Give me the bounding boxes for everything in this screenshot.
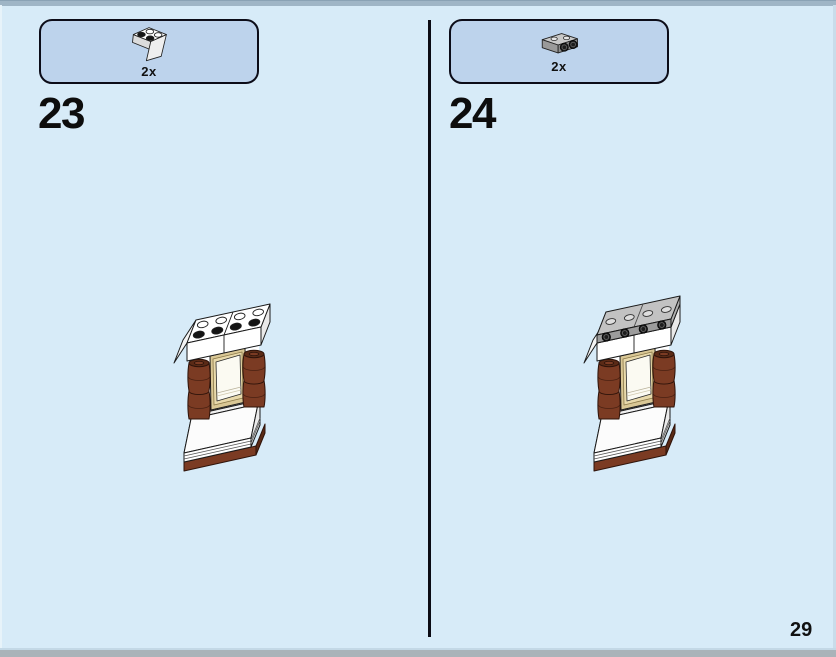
quantity-label: 2x — [551, 59, 566, 74]
page-left-edge — [0, 5, 2, 648]
step-number-24: 24 — [449, 92, 495, 136]
page-number: 29 — [790, 620, 820, 640]
parts-callout-box-step-24: 2x — [449, 19, 669, 84]
silver-1x2-plate-side-studs-icon — [535, 30, 583, 60]
quantity-label: 2x — [141, 64, 156, 79]
white-2x2-inverted-slope-brick-icon — [122, 25, 176, 65]
assembly-illustration-step-24 — [570, 290, 710, 480]
assembly-illustration-step-23 — [160, 290, 300, 480]
page-bottom-edge — [0, 648, 836, 657]
step-number-23: 23 — [38, 92, 84, 136]
parts-callout-box-step-23: 2x — [39, 19, 259, 84]
page-top-edge — [0, 0, 836, 6]
instruction-page: 2x 23 2x 24 29 — [0, 0, 836, 657]
column-divider-line — [428, 20, 431, 637]
